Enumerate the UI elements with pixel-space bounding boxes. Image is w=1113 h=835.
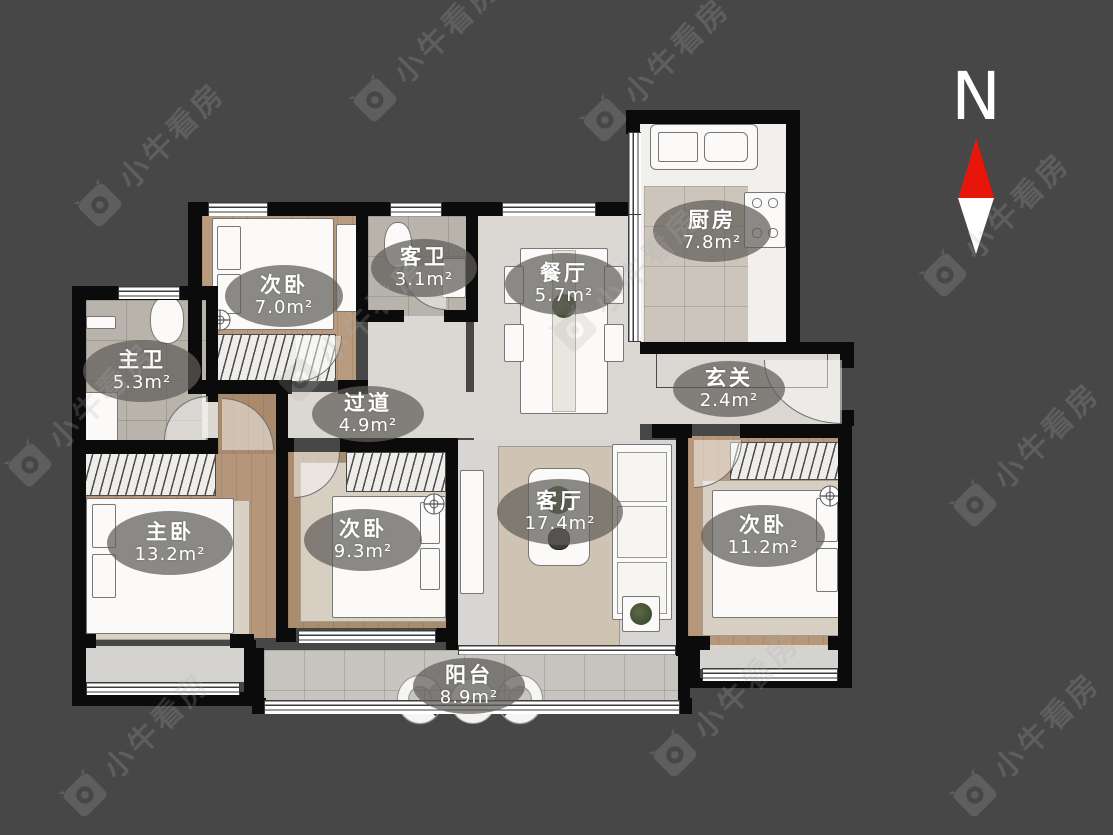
room-name: 玄关 xyxy=(705,367,753,391)
living-plant xyxy=(630,603,652,625)
crosshair-icon xyxy=(422,492,446,516)
room-area: 11.2m² xyxy=(728,538,799,558)
sofa-cushion xyxy=(617,506,667,558)
sofa-cushion xyxy=(617,452,667,502)
label-hallway: 过道 4.9m² xyxy=(312,386,424,442)
room-area: 4.9m² xyxy=(339,416,397,436)
room-name: 阳台 xyxy=(445,664,493,688)
sink-basin xyxy=(658,132,698,162)
watermark-text: 小牛看房 xyxy=(611,0,738,112)
label-master-bathroom: 主卫 5.3m² xyxy=(83,340,201,402)
room-name: 餐厅 xyxy=(540,262,588,286)
dining-chair xyxy=(504,324,524,362)
dining-chair xyxy=(604,324,624,362)
burner xyxy=(752,198,762,208)
toilet-master-bath xyxy=(150,296,184,344)
room-name: 过道 xyxy=(344,392,392,416)
label-master-bedroom: 主卧 13.2m² xyxy=(107,511,233,575)
label-bedroom-right: 次卧 11.2m² xyxy=(701,505,825,567)
window xyxy=(502,202,596,216)
watermark-logo-icon xyxy=(52,762,117,827)
wall xyxy=(276,392,288,640)
label-dining-room: 餐厅 5.7m² xyxy=(505,253,623,315)
watermark-logo-icon xyxy=(342,67,407,132)
floor-corridor-guest-bath xyxy=(368,316,466,392)
floor-master-bay-sill xyxy=(84,646,244,682)
wall xyxy=(276,438,294,452)
watermark-logo-icon xyxy=(0,432,62,497)
wall xyxy=(676,424,688,656)
room-name: 厨房 xyxy=(688,209,736,233)
wall xyxy=(786,110,800,354)
label-living-room: 客厅 17.4m² xyxy=(497,479,623,545)
pillow xyxy=(92,554,116,598)
wall xyxy=(626,110,800,124)
wall xyxy=(678,698,692,714)
room-area: 9.3m² xyxy=(334,542,392,562)
wall xyxy=(276,628,296,642)
watermark-text: 小牛看房 xyxy=(381,0,508,92)
room-name: 客卫 xyxy=(400,246,448,270)
wall xyxy=(840,348,854,368)
room-area: 2.4m² xyxy=(700,391,758,411)
room-area: 5.3m² xyxy=(113,373,171,393)
wall xyxy=(838,424,852,650)
window xyxy=(298,630,436,643)
floorplan-canvas: 次卧 7.0m² 客卫 3.1m² 餐厅 5.7m² 厨房 7.8m² 主卫 5… xyxy=(0,0,1113,835)
compass-needle-icon xyxy=(954,136,998,256)
wall xyxy=(740,424,852,438)
window xyxy=(208,202,268,216)
wardrobe-right xyxy=(730,442,840,480)
watermark-logo-icon xyxy=(942,472,1007,537)
label-kitchen: 厨房 7.8m² xyxy=(653,200,771,262)
room-area: 13.2m² xyxy=(135,545,206,565)
watermark-text: 小牛看房 xyxy=(981,660,1108,787)
wall xyxy=(626,110,640,134)
pillow xyxy=(217,226,241,270)
wall xyxy=(206,286,218,402)
sliding-door-kitchen xyxy=(628,214,641,342)
window xyxy=(86,682,240,695)
room-name: 次卧 xyxy=(739,514,787,538)
window xyxy=(390,202,442,216)
label-guest-bathroom: 客卫 3.1m² xyxy=(371,239,477,297)
room-name: 次卧 xyxy=(260,274,308,298)
tv-cabinet xyxy=(460,470,484,594)
window xyxy=(118,286,180,299)
room-area: 7.8m² xyxy=(683,233,741,253)
pillow xyxy=(420,548,440,590)
wall xyxy=(72,634,96,648)
wardrobe-middle xyxy=(346,452,446,492)
room-area: 7.0m² xyxy=(255,298,313,318)
wall xyxy=(436,628,458,642)
watermark-text: 小牛看房 xyxy=(981,370,1108,497)
room-area: 5.7m² xyxy=(535,286,593,306)
burner xyxy=(768,198,778,208)
label-bedroom-top-left: 次卧 7.0m² xyxy=(225,265,343,327)
floor-right-bay-sill xyxy=(700,645,838,669)
room-name: 次卧 xyxy=(339,518,387,542)
room-area: 3.1m² xyxy=(395,270,453,290)
wall xyxy=(640,342,854,354)
label-entry: 玄关 2.4m² xyxy=(673,361,785,417)
pillow xyxy=(816,548,838,592)
watermark-logo-icon xyxy=(642,722,707,787)
window xyxy=(702,668,838,681)
room-area: 17.4m² xyxy=(525,514,596,534)
compass-north-label: N xyxy=(948,58,1004,135)
wall xyxy=(356,204,368,316)
shower-fixture xyxy=(86,316,116,329)
room-area: 8.9m² xyxy=(440,688,498,708)
wall xyxy=(72,440,218,454)
room-name: 主卧 xyxy=(146,521,194,545)
wardrobe-master xyxy=(84,452,216,496)
room-name: 客厅 xyxy=(536,490,584,514)
window xyxy=(628,132,641,216)
watermark-text: 小牛看房 xyxy=(106,70,233,197)
watermark: 小牛看房 xyxy=(942,659,1110,827)
watermark-logo-icon xyxy=(67,172,132,237)
wall xyxy=(446,438,458,650)
room-name: 主卫 xyxy=(118,349,166,373)
sink-master-bath xyxy=(84,392,118,442)
watermark: 小牛看房 xyxy=(942,369,1110,537)
wall xyxy=(356,310,404,322)
watermark: 小牛看房 xyxy=(342,0,510,132)
label-balcony: 阳台 8.9m² xyxy=(413,658,525,714)
watermark-logo-icon xyxy=(942,762,1007,827)
label-bedroom-middle: 次卧 9.3m² xyxy=(304,509,422,571)
sink-basin xyxy=(704,132,748,162)
sliding-door-balcony xyxy=(458,645,676,655)
